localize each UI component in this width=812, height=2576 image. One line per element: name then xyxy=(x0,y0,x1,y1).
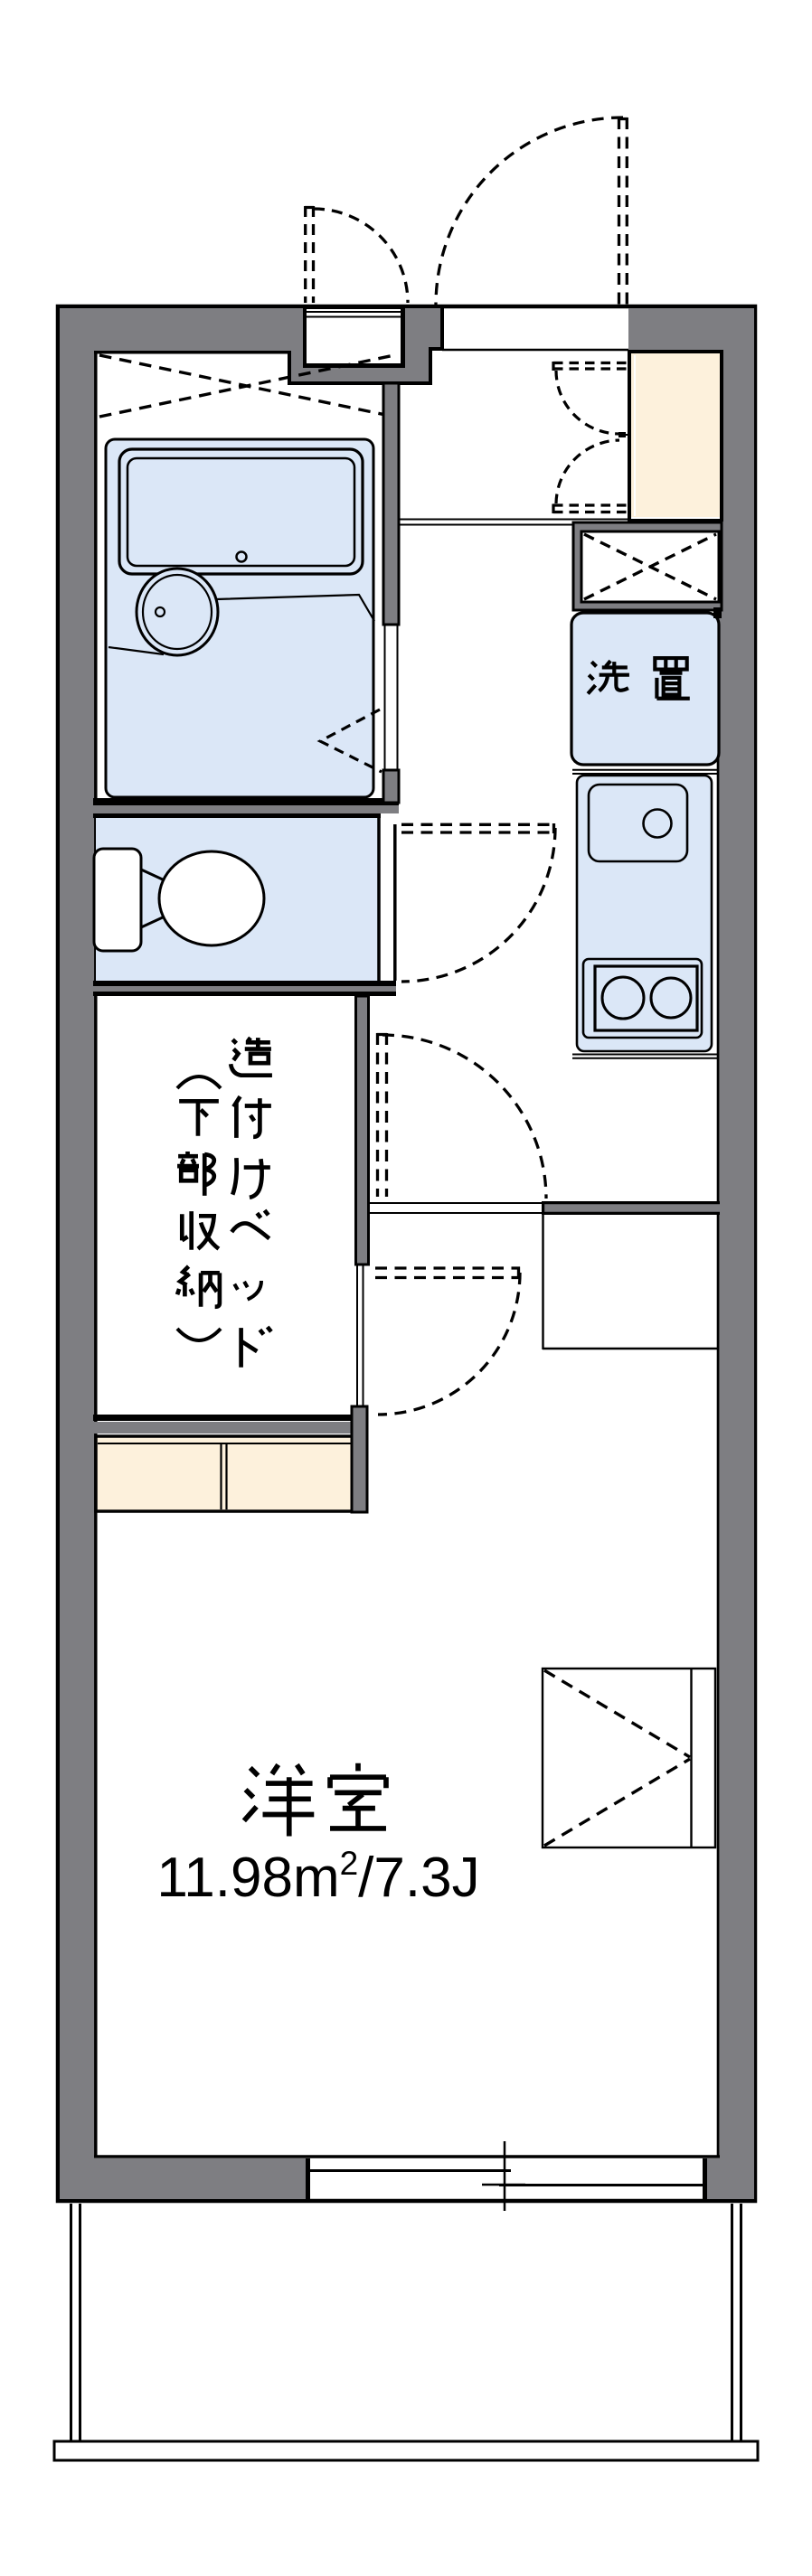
svg-text:11.98m2/7.3J: 11.98m2/7.3J xyxy=(156,1845,479,1909)
